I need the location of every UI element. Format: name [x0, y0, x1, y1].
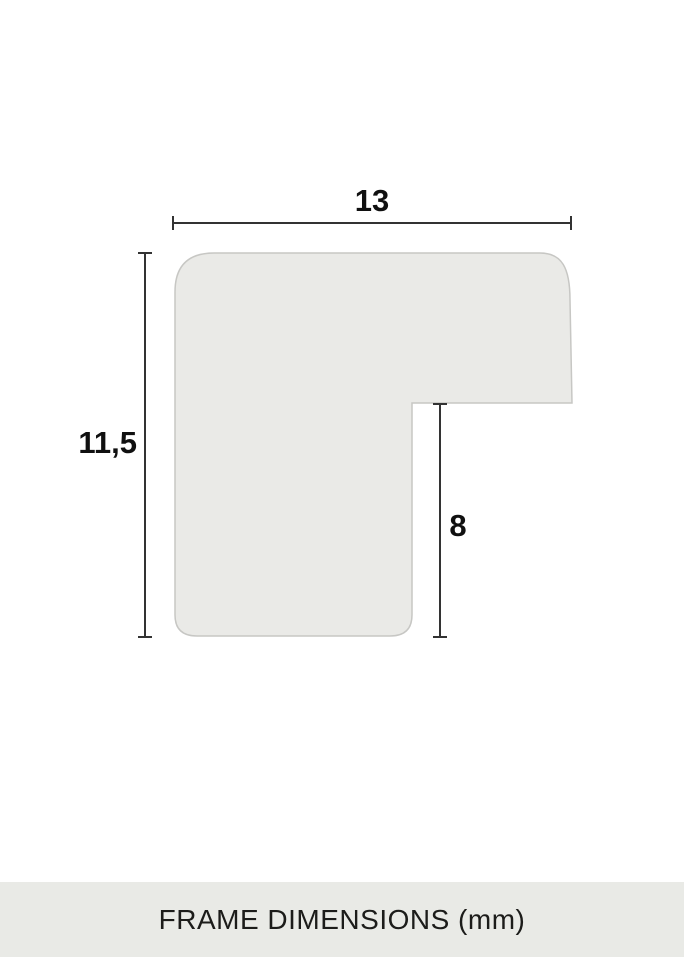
footer-caption: FRAME DIMENSIONS (mm) [159, 904, 526, 936]
width-dimension-label: 13 [355, 183, 389, 218]
rabbet-dimension-label: 8 [449, 508, 466, 543]
profile-diagram: 13 11,5 8 [0, 0, 684, 882]
width-dimension: 13 [173, 183, 571, 230]
frame-dimensions-page: 13 11,5 8 FRAME DIMENSIONS (mm) [0, 0, 684, 957]
height-dimension-label: 11,5 [78, 425, 137, 460]
height-dimension: 11,5 [78, 253, 152, 637]
footer-bar: FRAME DIMENSIONS (mm) [0, 882, 684, 957]
rabbet-dimension: 8 [433, 404, 467, 637]
frame-profile-shape [175, 253, 572, 636]
